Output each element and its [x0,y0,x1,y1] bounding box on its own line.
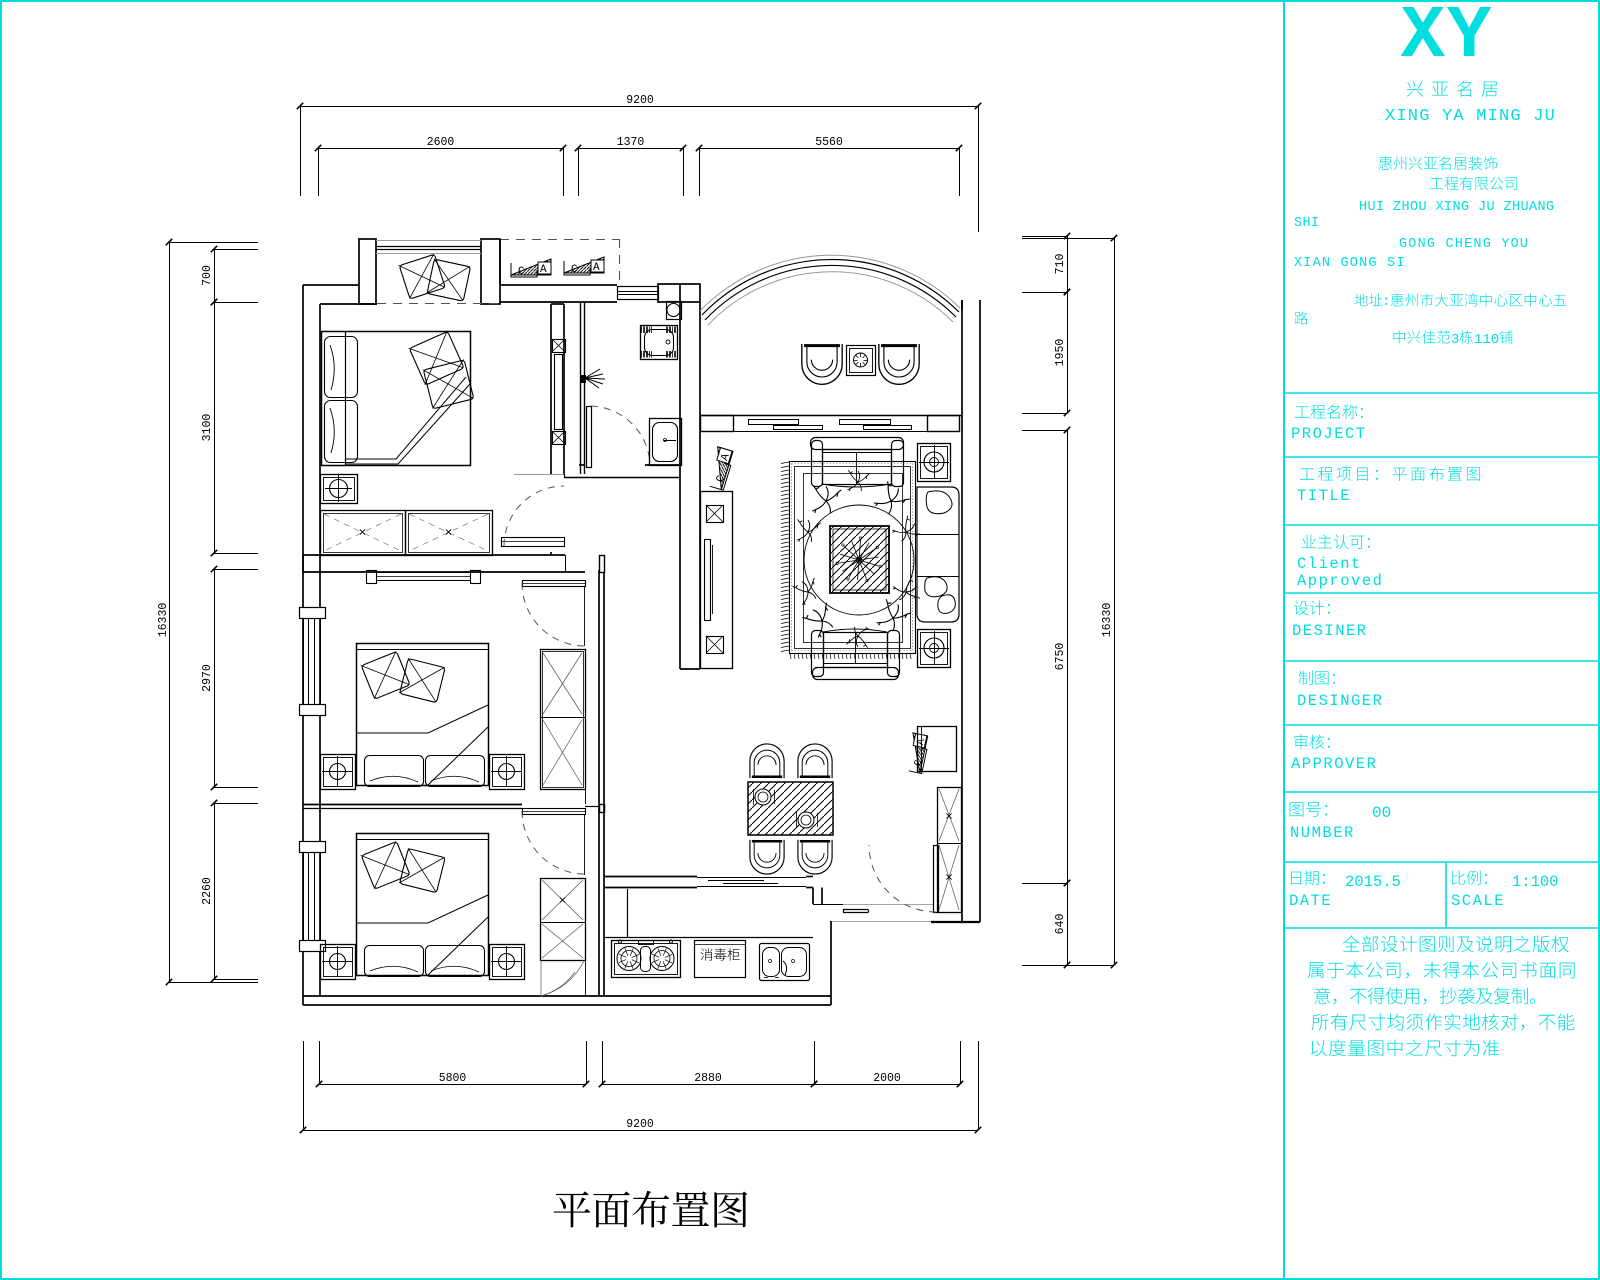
svg-text:SHI: SHI [1294,216,1320,231]
svg-text:2600: 2600 [427,136,455,149]
svg-text:2015.5: 2015.5 [1345,873,1401,891]
svg-text:110: 110 [1474,332,1499,348]
svg-text:5560: 5560 [815,136,843,149]
svg-text:A: A [540,264,547,276]
svg-text:00: 00 [1372,804,1391,822]
svg-text:C: C [518,266,525,278]
svg-text:Approved: Approved [1297,572,1383,590]
svg-text:1370: 1370 [617,136,645,149]
svg-text:GONG CHENG YOU: GONG CHENG YOU [1399,237,1529,252]
svg-text:2260: 2260 [201,877,214,905]
svg-text:C: C [571,264,578,276]
svg-text:DESINER: DESINER [1292,622,1368,640]
svg-text:Client: Client [1297,555,1362,573]
svg-text:HUI ZHOU XING JU ZHUANG: HUI ZHOU XING JU ZHUANG [1359,200,1555,215]
svg-text:SCALE: SCALE [1451,892,1505,910]
svg-text:640: 640 [1054,914,1067,935]
svg-text:2880: 2880 [694,1072,722,1085]
svg-text:1:100: 1:100 [1512,873,1559,891]
svg-text:2970: 2970 [201,664,214,692]
svg-text::: : [1382,294,1390,310]
svg-text:700: 700 [201,265,214,286]
svg-text:PROJECT: PROJECT [1291,425,1367,443]
svg-text:XING YA MING JU: XING YA MING JU [1385,107,1556,126]
svg-text:6750: 6750 [1054,643,1067,671]
svg-text:DATE: DATE [1289,892,1332,910]
svg-text:5800: 5800 [439,1072,467,1085]
svg-text:2000: 2000 [873,1072,901,1085]
svg-text:1950: 1950 [1054,339,1067,367]
svg-text:A: A [593,262,600,274]
svg-text:16330: 16330 [157,603,170,638]
svg-text:TITLE: TITLE [1297,487,1351,505]
svg-text:16330: 16330 [1101,603,1114,638]
svg-text:NUMBER: NUMBER [1290,824,1355,842]
svg-text:3: 3 [1451,332,1459,348]
svg-text:XY: XY [1401,0,1494,79]
svg-text:XIAN GONG SI: XIAN GONG SI [1294,256,1406,271]
svg-text:9200: 9200 [626,1118,654,1131]
svg-text:DESINGER: DESINGER [1297,692,1383,710]
svg-text:9200: 9200 [626,94,654,107]
svg-text:3100: 3100 [201,414,214,442]
svg-text:710: 710 [1054,254,1067,275]
svg-text:APPROVER: APPROVER [1291,755,1377,773]
